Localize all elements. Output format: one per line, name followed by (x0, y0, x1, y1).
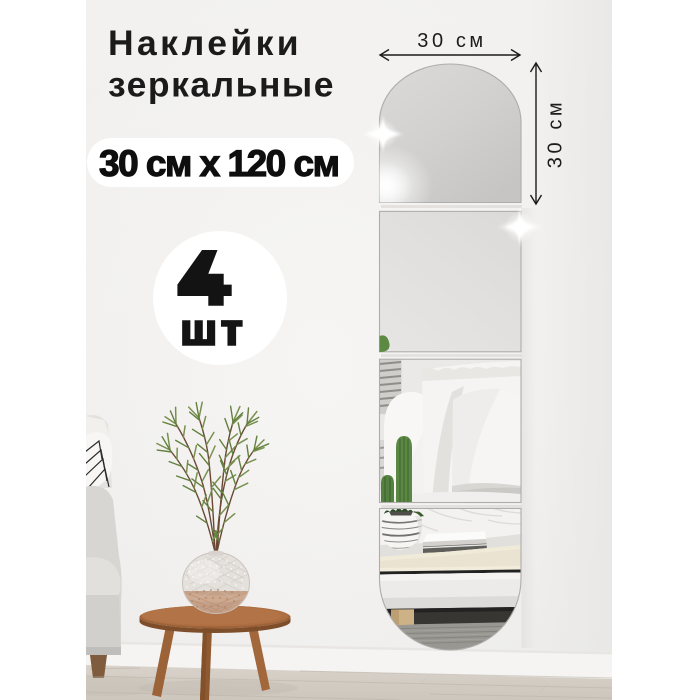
svg-text:30 см: 30 см (417, 30, 487, 52)
svg-text:Наклейки: Наклейки (108, 23, 302, 63)
svg-text:шт: шт (180, 306, 246, 355)
svg-text:зеркальные: зеркальные (108, 65, 335, 105)
svg-text:30 см x 120 см: 30 см x 120 см (99, 143, 338, 184)
svg-text:30 см: 30 см (545, 99, 567, 169)
